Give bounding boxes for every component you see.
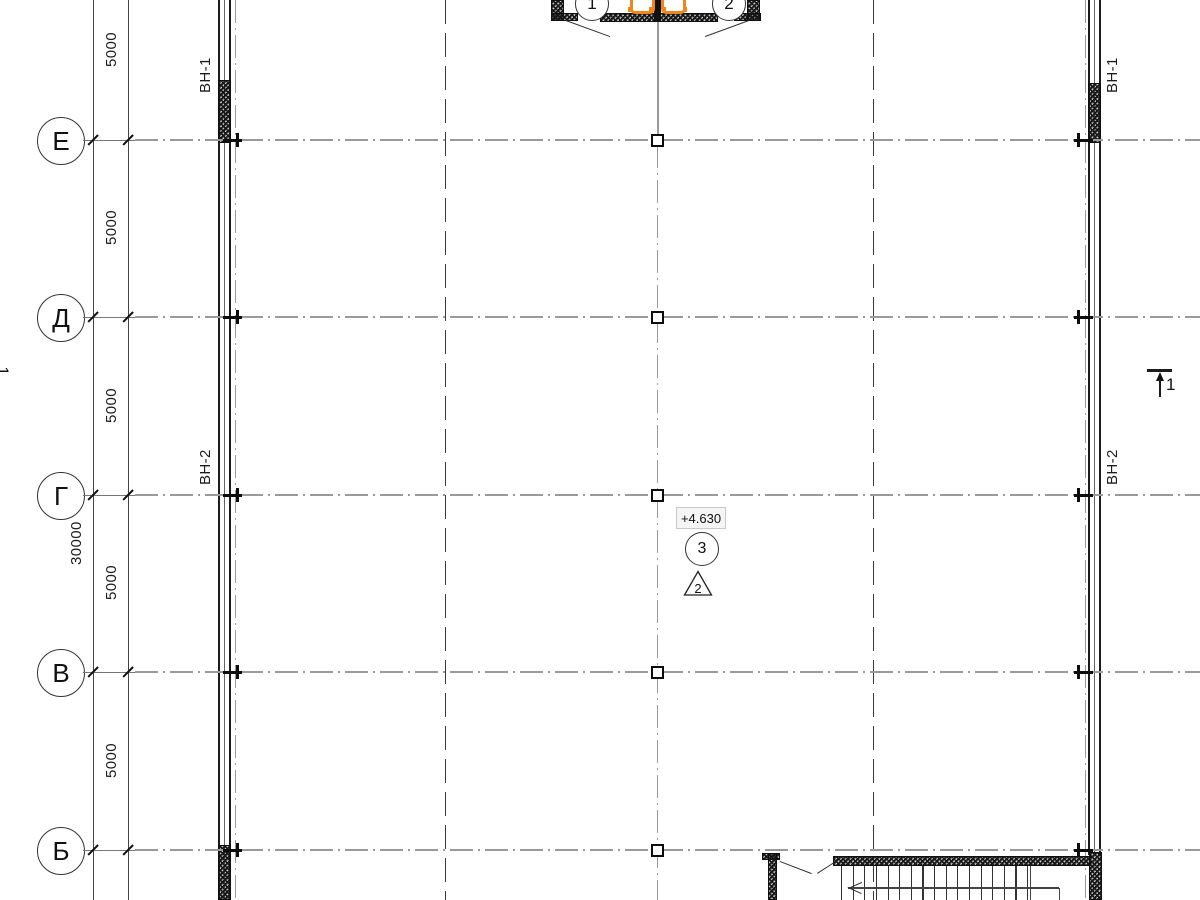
wall-tick-right-cap	[1077, 310, 1080, 324]
dimension-line-inner	[128, 0, 129, 900]
stair-tread	[1004, 866, 1005, 900]
wall-tick-left-cap	[236, 133, 239, 147]
section-mark-right-stem	[1159, 379, 1161, 397]
wall-tick-left	[223, 139, 242, 142]
wall-tick-right-cap	[1077, 665, 1080, 679]
detail-triangle-label: 2	[694, 581, 701, 596]
axis-bubble-label: Д	[52, 303, 70, 334]
stair-wall-top	[833, 856, 1091, 866]
entrance-bubble-1-label: 1	[587, 0, 596, 14]
grid-line-vertical-3	[873, 0, 874, 900]
orange-fixture-foot-4	[683, 7, 687, 12]
stair-wall-left-vert	[768, 853, 777, 900]
orange-fixture-foot-1	[628, 7, 632, 12]
node-bubble-3: 3	[685, 532, 719, 566]
axis-grid-line	[135, 849, 1200, 850]
left-wall-hatch-top	[218, 80, 232, 143]
grid-line-vertical-1	[445, 0, 446, 900]
entrance-center-pier	[654, 0, 661, 21]
wall-tick-right-cap	[1077, 133, 1080, 147]
column-node	[651, 489, 664, 502]
section-mark-right-label: 1	[1166, 375, 1175, 395]
dimension-label-5000: 5000	[103, 372, 120, 440]
wall-label-vn1-right: ВН-1	[1104, 36, 1121, 114]
stair-direction-arrow-line	[848, 887, 1059, 888]
orange-fixture-foot-3	[662, 7, 666, 12]
stair-tread	[864, 866, 865, 900]
stair-tread	[841, 866, 842, 900]
stair-tread	[1027, 866, 1028, 900]
floor-plan-canvas: ВН-1 ВН-2 ВН-1 ВН-2 1 2 +4.630 3 2 1 1	[0, 0, 1200, 900]
stair-arrow-return	[1059, 888, 1060, 900]
wall-tick-left-cap	[236, 488, 239, 502]
stair-tread	[946, 866, 947, 900]
stair-tread	[1015, 866, 1016, 900]
wall-tick-right-cap	[1077, 843, 1080, 857]
stair-door-leaf-1	[780, 861, 812, 874]
wall-tick-right-cap	[1077, 488, 1080, 502]
dimension-label-5000: 5000	[103, 549, 120, 617]
stair-tread	[969, 866, 970, 900]
stair-tread	[992, 866, 993, 900]
stair-tread	[888, 866, 889, 900]
axis-line-right-wall	[1085, 0, 1086, 900]
wall-tick-left	[223, 494, 242, 497]
dimension-line-outer	[93, 0, 94, 900]
wall-tick-left	[223, 671, 242, 674]
entrance-bubble-2-label: 2	[724, 0, 733, 14]
stair-tread	[957, 866, 958, 900]
wall-label-vn1-left: ВН-1	[197, 36, 214, 114]
column-node	[651, 844, 664, 857]
stair-well-edge	[1030, 866, 1031, 900]
axis-bubble-label: Е	[52, 126, 69, 157]
axis-bubble-label: В	[52, 658, 69, 689]
elevation-value: +4.630	[681, 511, 721, 526]
dimension-label-5000: 5000	[103, 194, 120, 262]
wall-tick-left-cap	[236, 665, 239, 679]
stair-tread	[922, 866, 923, 900]
axis-grid-line	[135, 671, 1200, 672]
orange-fixture-foot-2	[649, 7, 653, 12]
section-mark-left-label: 1	[0, 367, 10, 376]
stair-tread	[981, 866, 982, 900]
elevation-mark: +4.630	[676, 507, 726, 529]
wall-tick-left	[223, 316, 242, 319]
grid-line-vertical-center	[657, 145, 658, 900]
axis-bubble-Б: Б	[37, 827, 85, 875]
stair-wall-right-vert	[1089, 852, 1102, 900]
wall-tick-left-cap	[236, 843, 239, 857]
axis-grid-line	[135, 494, 1200, 495]
axis-bubble-Е: Е	[37, 117, 85, 165]
stair-tread	[853, 866, 854, 900]
axis-grid-line	[135, 139, 1200, 140]
left-wall-hatch-bottom	[218, 845, 232, 900]
wall-tick-left-cap	[236, 310, 239, 324]
right-wall-hatch-top	[1088, 83, 1102, 143]
dimension-label-30000: 30000	[68, 501, 85, 585]
axis-grid-line	[135, 316, 1200, 317]
entrance-corner-left-foot	[551, 13, 578, 21]
node-bubble-3-label: 3	[698, 540, 707, 558]
wall-tick-left	[223, 849, 242, 852]
stair-tread	[876, 866, 877, 900]
stair-tread	[934, 866, 935, 900]
column-node	[651, 666, 664, 679]
axis-bubble-В: В	[37, 649, 85, 697]
stair-tread	[911, 866, 912, 900]
column-node	[651, 134, 664, 147]
axis-bubble-Д: Д	[37, 294, 85, 342]
entrance-axis-stem	[657, 21, 659, 145]
axis-bubble-label: Б	[52, 836, 69, 867]
entrance-door-leaf-left	[566, 20, 611, 37]
column-node	[651, 311, 664, 324]
detail-triangle: 2	[683, 570, 713, 602]
dimension-label-5000: 5000	[103, 727, 120, 795]
stair-tread	[899, 866, 900, 900]
entrance-door-leaf-right	[705, 19, 750, 36]
dimension-label-5000: 5000	[103, 16, 120, 84]
axis-bubble-label: Г	[54, 481, 68, 512]
